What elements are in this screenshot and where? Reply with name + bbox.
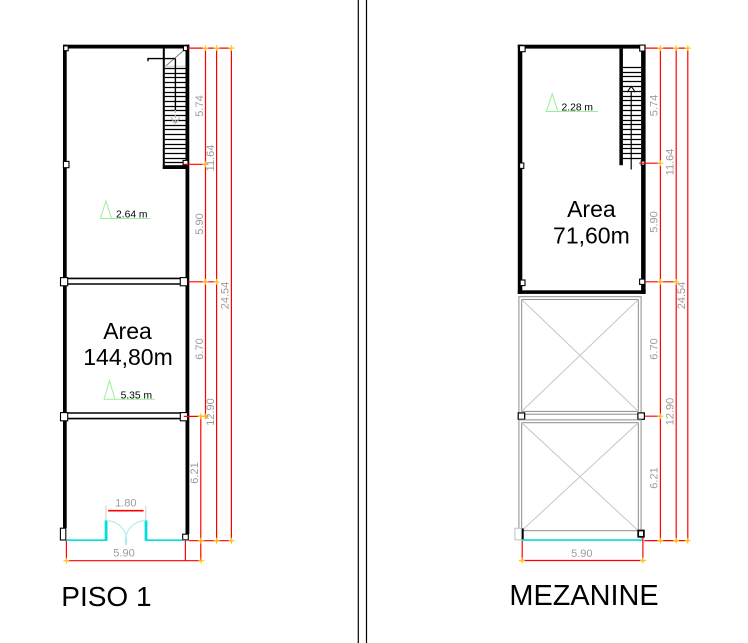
svg-text:12.90: 12.90 <box>665 398 677 426</box>
svg-text:11.64: 11.64 <box>205 145 217 172</box>
svg-text:24.54: 24.54 <box>220 282 232 310</box>
svg-text:5.90: 5.90 <box>194 213 206 234</box>
svg-text:144,80m: 144,80m <box>83 344 173 370</box>
svg-text:PISO 1: PISO 1 <box>61 581 151 612</box>
svg-text:2.64 m: 2.64 m <box>116 210 147 221</box>
svg-text:Area: Area <box>103 318 152 344</box>
svg-text:5.90: 5.90 <box>649 211 661 232</box>
svg-text:1.80: 1.80 <box>115 498 136 510</box>
svg-text:MEZANINE: MEZANINE <box>509 580 658 612</box>
svg-text:24.54: 24.54 <box>676 282 688 310</box>
svg-text:6.21: 6.21 <box>649 467 661 488</box>
svg-text:11.64: 11.64 <box>665 149 677 176</box>
svg-text:Area: Area <box>567 196 616 222</box>
svg-text:5.90: 5.90 <box>571 548 592 560</box>
svg-text:5.74: 5.74 <box>649 95 661 116</box>
svg-text:5.35 m: 5.35 m <box>121 390 152 401</box>
svg-text:6.70: 6.70 <box>194 338 206 359</box>
svg-text:2.28 m: 2.28 m <box>562 103 593 114</box>
svg-text:6.21: 6.21 <box>189 462 201 483</box>
svg-text:6.70: 6.70 <box>649 338 661 359</box>
svg-text:5.90: 5.90 <box>113 547 134 559</box>
svg-text:71,60m: 71,60m <box>553 222 630 248</box>
svg-text:12.90: 12.90 <box>205 398 217 426</box>
svg-text:5.74: 5.74 <box>194 95 206 116</box>
